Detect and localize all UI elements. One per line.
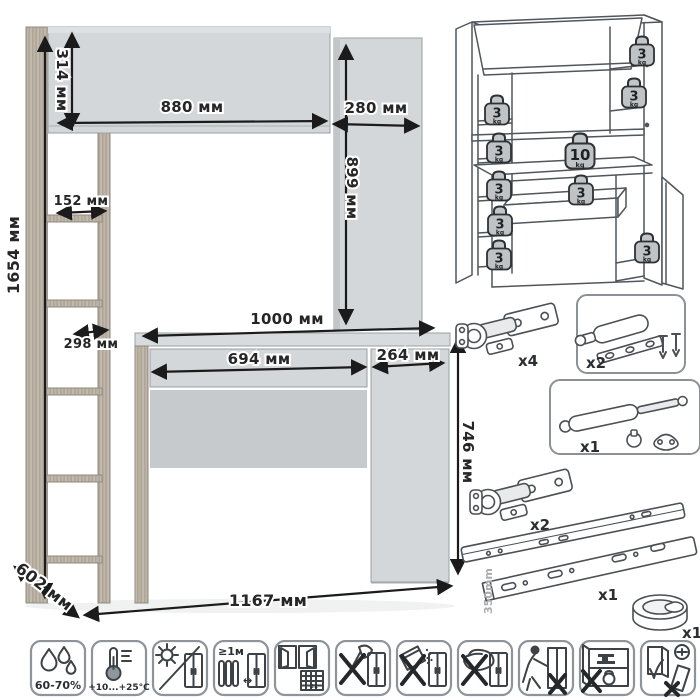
weight-icon-10kg: 10 kg (563, 130, 597, 171)
label-drawer-width: 694 мм (228, 350, 291, 368)
label-shelf-width: 152 мм (54, 194, 109, 209)
label-side-width: 280 мм (345, 99, 408, 117)
label-door-width: 264 мм (377, 346, 440, 364)
hinge-top-count: x4 (518, 352, 538, 370)
hinge-bottom-icon (470, 468, 576, 521)
svg-text:+10...+25°C: +10...+25°C (88, 683, 150, 693)
weight-icon: 3 kg (567, 172, 595, 206)
svg-text:kg: kg (638, 60, 646, 67)
svg-text:kg: kg (643, 257, 651, 264)
svg-text:kg: kg (577, 199, 585, 206)
furniture-spec-sheet: { "dimensions": { "total_height": "1654 … (0, 0, 700, 700)
weight-icon: 3 kg (485, 168, 513, 202)
hinge-top-icon (456, 302, 562, 355)
weight-icon: 3 kg (620, 75, 648, 109)
label-side-height: 899 мм (343, 157, 361, 220)
label-total-height: 1654 мм (4, 216, 23, 294)
weight-icon: 3 kg (628, 33, 656, 67)
label-desktop-width: 1000 мм (250, 310, 324, 328)
svg-text:60-70%: 60-70% (35, 679, 81, 692)
svg-text:kg: kg (495, 264, 503, 271)
label-hutch-height: 314 мм (53, 49, 71, 112)
front-view-drawing: 1654 мм 314 мм 880 мм 280 мм 899 мм 152 … (0, 0, 490, 650)
gas-lift-icon: x1 (550, 380, 700, 456)
svg-text:21: 21 (310, 684, 318, 690)
slides-count: x1 (598, 586, 618, 604)
weight-icon: 3 kg (486, 203, 514, 237)
label-total-width: 1167 мм (229, 591, 307, 610)
weight-icon: 3 kg (485, 237, 513, 271)
push-latch-count: x2 (586, 354, 606, 372)
weight-icon: 3 kg (483, 92, 511, 126)
desk-left-side (135, 346, 148, 603)
desk-back-panel (150, 390, 367, 468)
svg-text:kg: kg (576, 161, 585, 169)
slides-length-note: 350mm (482, 568, 495, 614)
gas-lift-count: x1 (580, 438, 600, 456)
hardware-list: x4 x2 x1 x2 (438, 292, 700, 640)
push-latch-icon: x2 (573, 295, 685, 373)
svg-text:kg: kg (496, 230, 504, 237)
svg-text:kg: kg (493, 119, 501, 126)
svg-text:kg: kg (495, 157, 503, 164)
svg-text:kg: kg (630, 102, 638, 109)
hutch-flap-front (48, 27, 330, 133)
grommet-count: x1 (682, 624, 700, 640)
load-capacity-diagram: 3 kg 3 kg 3 kg 3 kg 3 kg 3 kg 3 kg (438, 5, 700, 300)
svg-text:kg: kg (495, 195, 503, 202)
label-hutch-width: 880 мм (161, 98, 224, 116)
svg-text:≥1м: ≥1м (218, 645, 244, 658)
weight-icon: 3 kg (485, 130, 513, 164)
care-icons-row: 60-70% +10...+25°C ≥1м ↔ 21 (28, 640, 700, 698)
label-shelf-depth: 298 мм (64, 337, 119, 352)
cable-grommet-icon (633, 595, 687, 630)
weight-icon: 3 kg (633, 230, 661, 264)
